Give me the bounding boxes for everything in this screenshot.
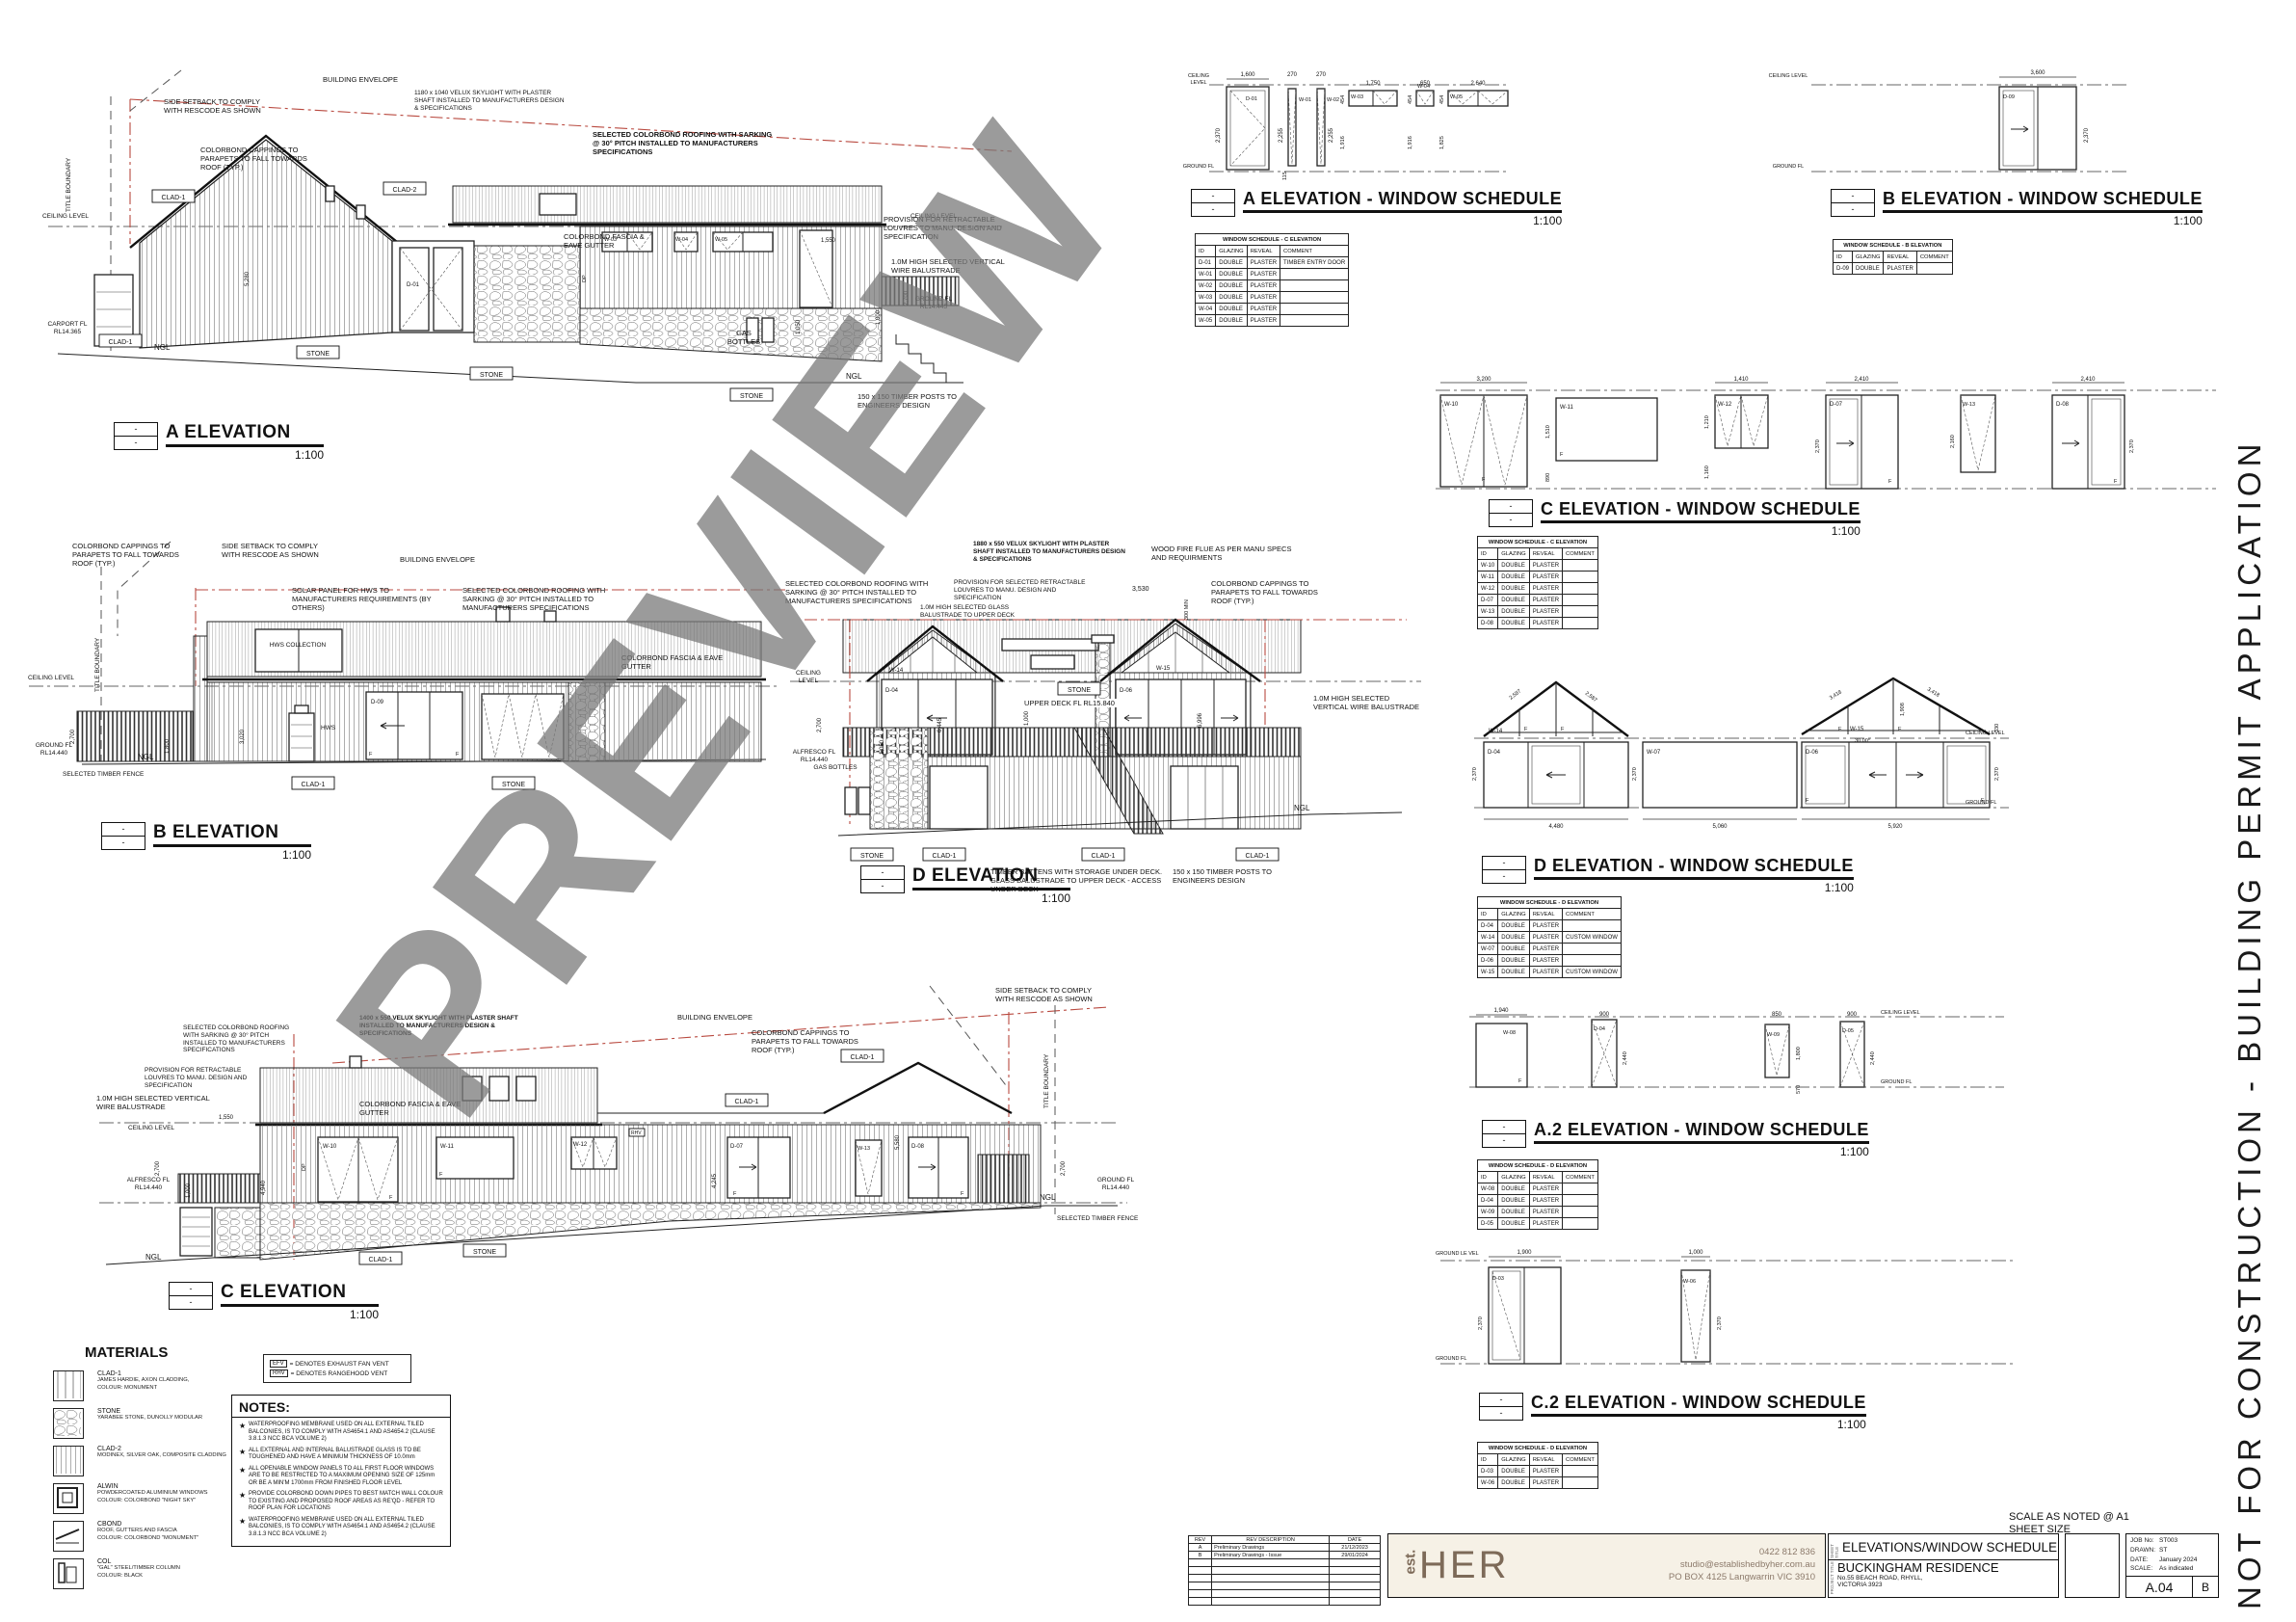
annotation: UPPER DECK FL RL15.840 [1021,699,1118,707]
vent-legend: EFV= DENOTES EXHAUST FAN VENT RHV= DENOT… [263,1354,411,1383]
dim: 2,370 [1815,439,1821,453]
table-row: D-01DOUBLEPLASTERTIMBER ENTRY DOOR [1196,257,1349,269]
dim: 3,200 [1476,377,1491,383]
annotation: COLORBOND CAPPINGS TO PARAPETS TO FALL T… [1211,579,1334,605]
d-elevation-title: -- D ELEVATION1:100 [860,865,1070,905]
tag-clad1: CLAD-1 [1236,848,1279,861]
dim: 1,600 [1240,72,1255,78]
window-id: D-06 [1806,750,1819,756]
svg-text:CLAD-1: CLAD-1 [1246,853,1270,860]
revision-table: REVREV DESCRIPTIONDATE APreliminary Draw… [1188,1535,1381,1606]
window-id: W-06 [1683,1279,1696,1285]
level-label: CEILING LEVEL [1966,731,2019,737]
boundary-label: TITLE BOUNDARY [1043,1054,1051,1108]
annotation: PROVISION FOR RETRACTABLE LOUVRES TO MAN… [145,1067,255,1089]
drawn-by: ST [2159,1547,2167,1554]
dim: 2,640 [1470,81,1486,87]
dim: 1,940 [1493,1008,1509,1014]
project-address: VICTORIA 3923 [1837,1582,1999,1588]
clad2-swatch [53,1446,84,1476]
note: ★PROVIDE COLORBOND DOWN PIPES TO BEST MA… [239,1491,443,1513]
window-id: W-05 [1450,94,1463,100]
tag-stone: STONE [297,346,339,359]
boundary-label: TITLE BOUNDARY [94,638,102,692]
dim: 300 MIN [1184,599,1190,620]
table-row: W-03DOUBLEPLASTER [1196,292,1349,304]
cbond-swatch [53,1521,84,1552]
notes-title: NOTES: [232,1399,450,1418]
table-row: W-07DOUBLEPLASTER [1478,944,1622,955]
annotation: HWS COLLECTION [263,642,332,650]
dim: 1,550 [219,1115,234,1121]
ngl-label: NGL [1294,804,1310,812]
table-row: W-13DOUBLEPLASTER [1478,606,1598,618]
logo-block: est. HER 0422 812 836 studio@established… [1387,1533,1826,1598]
c2-window-schedule-table: WINDOW SCHEDULE - D ELEVATION IDGLAZINGR… [1477,1442,1598,1489]
table-row: D-05DOUBLEPLASTER [1478,1218,1598,1230]
dim: 1,210 [1704,415,1710,429]
project-title: BUCKINGHAM RESIDENCE [1837,1560,1999,1575]
level-label: CEILING LEVEL [40,213,91,221]
svg-text:CLAD-1: CLAD-1 [162,195,186,201]
tag-stone: STONE [470,367,513,380]
dim: 1,410 [1733,377,1749,383]
tag-clad1: CLAD-1 [726,1094,768,1106]
door-d01 [400,248,429,331]
drawing-sheet: CLAD-1 CLAD-1 CLAD-2 STONE STONE STONE N… [0,0,2296,1622]
note: ★WATERPROOFING MEMBRANE USED ON ALL EXTE… [239,1422,443,1444]
annotation: COLORBOND FASCIA & EAVE GUTTER [564,232,665,250]
dim: 5,580 [895,1134,901,1150]
tag-stone: STONE [463,1244,506,1257]
tag-clad1: CLAD-1 [1082,848,1124,861]
dim: 2,700 [1061,1160,1067,1176]
window-w02 [1317,89,1325,166]
window-id: D-06 [1120,688,1133,694]
dim: 2,370 [1632,767,1638,781]
dim: 6,445 [937,717,943,732]
b-window-schedule-table: WINDOW SCHEDULE - B ELEVATION IDGLAZINGR… [1833,239,1953,275]
notes-section: NOTES: ★WATERPROOFING MEMBRANE USED ON A… [231,1395,451,1547]
project-title-label: PROJECT TITLE [1829,1560,1835,1595]
svg-text:STONE: STONE [306,351,330,358]
dim: 2,255 [1279,127,1284,143]
revision-row: APreliminary Drawings21/12/2023 [1189,1544,1381,1552]
window-id: D-04 [1594,1026,1605,1032]
ngl-label: NGL [154,343,171,352]
dim: 115 [1282,172,1288,180]
ngl-label: NGL [138,753,154,761]
annotation: COLORBOND CAPPINGS TO PARAPETS TO FALL T… [72,542,186,568]
annotation: 1.0M HIGH SELECTED GLASS BALUSTRADE TO U… [920,604,1028,620]
level-label: ALFRESCO FL RL14.440 [119,1177,178,1192]
tag-stone: STONE [851,848,893,861]
level-label: CARPORT FL RL14.365 [39,321,96,336]
logo-est: est. [1403,1557,1419,1575]
window-id: W-13 [858,1146,870,1152]
dim: 2,370 [1216,127,1222,143]
window-id: D-01 [1246,96,1257,102]
a-schedule-title: -- A ELEVATION - WINDOW SCHEDULE1:100 [1191,189,1509,227]
hws-unit [289,713,314,761]
b-schedule-title: -- B ELEVATION - WINDOW SCHEDULE1:100 [1831,189,2149,227]
dim: 5,920 [1887,824,1903,830]
gable-roof-edge [824,1063,1012,1113]
skylight [540,194,576,215]
roof-band [453,186,882,223]
dim: 3,600 [2030,70,2045,76]
table-row: W-10DOUBLEPLASTER [1478,560,1598,572]
dim: 2,700 [155,1160,161,1176]
svg-text:STONE: STONE [860,853,884,860]
fixed-mark: F [1524,727,1528,732]
gas-bottle [845,787,857,814]
col-swatch [53,1558,84,1589]
svg-text:CLAD-1: CLAD-1 [735,1099,759,1105]
level-label: GROUND FL [1180,164,1217,171]
window-id: D-08 [911,1144,925,1150]
dim: 1,000 [1024,710,1030,726]
downpipe-label: DP [582,275,588,282]
garage-door [180,1208,212,1256]
boundary-label: TITLE BOUNDARY [66,158,73,212]
table-row: D-03DOUBLEPLASTER [1478,1466,1598,1477]
dim: 2,370 [1472,767,1478,781]
dim: 3,020 [240,729,246,744]
revision-row: BPreliminary Drawings - Issue29/01/2024 [1189,1552,1381,1559]
alwin-swatch [53,1483,84,1514]
table-row: W-08DOUBLEPLASTER [1478,1183,1598,1195]
dim: 5,280 [245,271,251,286]
dim: 3,418 [1926,687,1940,699]
dim: 4,940 [261,1180,267,1195]
stone-wall [474,246,580,342]
date-value: January 2024 [2159,1556,2197,1563]
dim: 2,370 [1994,767,2000,781]
note: ★WATERPROOFING MEMBRANE USED ON ALL EXTE… [239,1517,443,1539]
dim: 6,996 [1198,712,1203,728]
window-id: W-11 [440,1144,454,1150]
dim: 270 [1316,72,1327,78]
ngl-label: NGL [145,1253,162,1262]
phone: 0422 812 836 [1669,1547,1815,1559]
dim: 2,160 [1950,435,1956,448]
annotation: SIDE SETBACK TO COMPLY WITH RESCODE AS S… [222,542,326,559]
svg-text:CLAD-1: CLAD-1 [933,853,957,860]
d-window-schedule-drawing: W-14 FF 2,587 2,587 D-04 4,480 2,370 W-0… [1465,673,2023,832]
dim: 1,160 [1704,465,1710,479]
c-elevation-title: -- C ELEVATION1:100 [169,1282,379,1321]
window-w01 [1288,89,1296,166]
table-row: D-09DOUBLEPLASTER [1834,263,1953,275]
level-label: GROUND FL [1966,800,2019,807]
window-id: D-07 [1830,402,1843,408]
dim: 454 [1340,95,1346,104]
dim: 2,440 [1623,1051,1628,1065]
table-row: D-04DOUBLEPLASTER [1478,1195,1598,1207]
not-for-construction-text: NOT FOR CONSTRUCTION - BUILDING PERMIT A… [2231,145,2282,1609]
dim: 270 [1287,72,1298,78]
level-label: GROUND FL RL14.440 [24,742,84,758]
svg-text:STONE: STONE [480,372,503,379]
dim: 4,480 [1548,824,1564,830]
fixed-mark: F [1898,727,1902,732]
contact-info: 0422 812 836 studio@establishedbyher.com… [1669,1547,1825,1583]
tag-clad1: CLAD-1 [99,334,142,347]
annotation: BUILDING ENVELOPE [677,1013,822,1022]
window-id: W-07 [1647,750,1661,756]
table-row: D-07DOUBLEPLASTER [1478,595,1598,606]
window-id: W-09 [1767,1032,1780,1038]
sheet-revision: B [2193,1577,2218,1598]
window-id: W-03 [1351,94,1363,100]
dim: 1,000 [1688,1250,1703,1256]
window-id: W-11 [1560,405,1573,411]
window-id: W-01 [1299,97,1311,103]
window-id: W-12 [573,1142,588,1148]
dim: 2,255 [1329,127,1334,143]
window-id: D-01 [407,282,420,288]
dim: 900 [1847,1012,1858,1018]
svg-text:STONE: STONE [1068,687,1091,694]
svg-text:STONE: STONE [473,1249,496,1256]
clad1-swatch [53,1370,84,1401]
table-row: W-12DOUBLEPLASTER [1478,583,1598,595]
annotation: SOLAR PANEL FOR HWS TO MANUFACTURERS REQ… [292,586,451,612]
dim: 1,825 [1439,136,1445,149]
window-id: W-13 [1963,402,1975,408]
level-label: CEILING LEVEL [26,675,76,682]
c-window-schedule-drawing: 3,200 W-10 F W-11 F 1,510 890 1,410 W-12… [1426,371,2226,498]
window-id: D-05 [1842,1028,1854,1034]
dim: 1,900 [1517,1250,1532,1256]
dim: 1,916 [1408,136,1413,149]
dim: 1,916 [1340,136,1346,149]
window-id: W-12 [1718,402,1732,408]
svg-text:CLAD-1: CLAD-1 [851,1054,875,1061]
a2-window-schedule-table: WINDOW SCHEDULE - D ELEVATION IDGLAZINGR… [1477,1159,1598,1230]
sheet-number: A.04 [2126,1577,2193,1598]
timber-fence [77,711,193,761]
level-label: CEILING LEVEL [126,1125,176,1132]
note: ★ALL OPENABLE WINDOW PANELS TO ALL FIRST… [239,1466,443,1488]
window-id: W-04 [1417,84,1430,90]
window-id: W-14 [1489,729,1503,734]
table-row: W-06DOUBLEPLASTER [1478,1477,1598,1489]
dim: 570 [1796,1085,1802,1094]
table-row: W-04DOUBLEPLASTER [1196,304,1349,315]
level-label: GROUND FL [1768,164,1808,171]
c-elevation-drawing: RHV CLAD-1 CLAD-1 CLAD-1 STONE NGL NGL W… [92,978,1228,1279]
window-id: D-03 [1492,1276,1504,1282]
window-id: W-14 [889,668,904,674]
window-id: W-15 [1850,727,1864,732]
dim: 2,370 [1478,1316,1484,1330]
annotation: GAS BOTTLES [812,764,858,772]
d-window-schedule-table: WINDOW SCHEDULE - D ELEVATION IDGLAZINGR… [1477,896,1622,978]
efv-legend: EFV= DENOTES EXHAUST FAN VENT [270,1360,405,1368]
dim: 890 [1545,473,1551,482]
annotation: SELECTED TIMBER FENCE [1057,1215,1148,1223]
c2-schedule-title: -- C.2 ELEVATION - WINDOW SCHEDULE1:100 [1479,1393,1811,1431]
annotation: SELECTED COLORBOND ROOFING WITH SARKING … [183,1024,291,1054]
annotation: SELECTED COLORBOND ROOFING WITH SARKING … [593,130,780,156]
annotation: 1880 x 550 VELUX SKYLIGHT WITH PLASTER S… [973,541,1127,563]
materials-title: MATERIALS [85,1344,279,1361]
table-row: D-06DOUBLEPLASTER [1478,955,1622,967]
svg-text:CLAD-1: CLAD-1 [369,1257,393,1263]
window-id: W-10 [1444,402,1459,408]
dim: 3,530 [1132,586,1149,593]
a-window-schedule-drawing: 1,600 2,370 D-01 270 2,255 W-01 270 2,25… [1180,48,1513,193]
stone-wall [870,728,928,829]
dim: 2,440 [1870,1051,1876,1065]
a-window-schedule-table: WINDOW SCHEDULE - C ELEVATION IDGLAZINGR… [1195,233,1349,327]
level-label: CEILING LEVEL [1180,73,1217,86]
address: PO BOX 4125 Langwarrin VIC 3910 [1669,1572,1815,1584]
level-label: GROUND LE VEL [1436,1251,1486,1258]
stone-base [260,1203,1041,1260]
sheet-title-label: SHEET TITLE [1829,1534,1840,1559]
dim: 2,410 [1854,377,1869,383]
window-id: W-15 [1156,666,1171,672]
annotation: BUILDING ENVELOPE [323,75,477,84]
d-schedule-title: -- D ELEVATION - WINDOW SCHEDULE1:100 [1482,856,1800,894]
dim: 4,245 [712,1173,718,1188]
window-id: W-04 [675,237,688,243]
dim: 454 [1439,95,1445,104]
a2-window-schedule-drawing: 1,940 W-08 F 900 2,440 D-04 850 1,800 57… [1465,969,2023,1099]
dim: 454 [1408,95,1413,104]
timber-fence [978,1155,1029,1203]
annotation: SIDE SETBACK TO COMPLY WITH RESCODE AS S… [164,97,265,115]
a-elevation-title: -- A ELEVATION1:100 [114,422,324,462]
level-label: GROUND FL [1881,1079,1939,1086]
dim: 2,370 [1717,1316,1723,1330]
tag-clad2: CLAD-2 [383,182,426,195]
annotation: COLORBOND CAPPINGS TO PARAPETS TO FALL T… [200,146,326,172]
annotation: WOOD FIRE FLUE AS PER MANU SPECS AND REQ… [1151,545,1296,562]
table-row: W-02DOUBLEPLASTER [1196,280,1349,292]
job-info-block: JOB No:ST003 DRAWN:ST DATE:January 2024 … [2125,1533,2219,1598]
table-row: W-01DOUBLEPLASTER [1196,269,1349,280]
annotation: 1.0M HIGH SELECTED VERTICAL WIRE BALUSTR… [96,1094,220,1111]
note: ★ALL EXTERNAL AND INTERNAL BALUSTRADE GL… [239,1448,443,1462]
c-window-schedule-table: WINDOW SCHEDULE - C ELEVATION IDGLAZINGR… [1477,536,1598,629]
dim: 2,587 [1509,689,1523,702]
window-id: D-07 [730,1144,744,1150]
window-id: W-02 [1327,97,1339,103]
tag-clad1: CLAD-1 [923,848,965,861]
table-row: D-04DOUBLEPLASTER [1478,920,1622,932]
scale-value: As indicated [2159,1565,2193,1572]
dim: 1,800 [1796,1047,1802,1060]
stone-swatch [53,1408,84,1439]
svg-text:CLAD-1: CLAD-1 [109,339,133,346]
level-label: CEILING LEVEL [1881,1010,1939,1017]
dim: 5,060 [1712,824,1728,830]
window-id: D-09 [2003,94,2015,100]
b-window-schedule-drawing: 3,600 2,370 D-09 CEILING LEVEL GROUND FL [1768,48,2134,193]
job-number: ST003 [2159,1537,2177,1544]
logo-her: HER [1419,1544,1509,1587]
a2-schedule-title: -- A.2 ELEVATION - WINDOW SCHEDULE1:100 [1482,1120,1809,1158]
downpipe-label: DP [302,1163,307,1171]
dim: 1,510 [1545,425,1551,439]
annotation: 1180 x 1040 VELUX SKYLIGHT WITH PLASTER … [414,90,568,112]
sheet-project-title-block: SHEET TITLE ELEVATIONS/WINDOW SCHEDULE P… [1828,1533,2059,1598]
svg-text:CLAD-2: CLAD-2 [393,187,417,194]
dim: 900 [1599,1012,1610,1018]
dim: 1,000 [186,1183,192,1198]
tag-clad1: CLAD-1 [359,1252,402,1264]
annotation: PROVISION FOR SELECTED RETRACTABLE LOUVR… [954,579,1089,601]
annotation: 1.0M HIGH SELECTED VERTICAL WIRE BALUSTR… [1313,694,1421,711]
annotation: BUILDING ENVELOPE [400,555,554,564]
dim: 1,750 [1365,81,1381,87]
dim: 3,418 [1829,689,1843,701]
fixed-mark: F [1838,727,1842,732]
svg-text:CLAD-1: CLAD-1 [302,782,326,788]
window-id: D-09 [371,700,384,705]
rhv-label: RHV [631,1130,642,1136]
table-row: W-11DOUBLEPLASTER [1478,572,1598,583]
table-row: D-08DOUBLEPLASTER [1478,618,1598,629]
dim: 850 [1772,1012,1782,1018]
ngl-label: NGL [1040,1193,1056,1202]
dim: 2,370 [2084,127,2090,143]
tag-stone: STONE [1058,682,1100,695]
window-id: W-10 [323,1144,337,1150]
annotation: SIDE SETBACK TO COMPLY WITH RESCODE AS S… [995,986,1099,1003]
dim: 2,410 [2080,377,2096,383]
dim: 2,587 [1584,691,1598,704]
window-id: W-08 [1503,1030,1516,1036]
dim: 1,800 [165,738,171,754]
svg-text:CLAD-1: CLAD-1 [1092,853,1116,860]
c-schedule-title: -- C ELEVATION - WINDOW SCHEDULE1:100 [1489,499,1807,538]
parapet [194,636,207,761]
stamp-box [2065,1533,2120,1598]
material-col: COL"GAL" STEEL/TIMBER COLUMN COLOUR: BLA… [53,1558,279,1589]
window-id: W-05 [715,237,727,243]
annotation: HWS [321,725,359,732]
level-label: GROUND FL [1436,1356,1486,1363]
level-label: CEILING LEVEL [1768,73,1808,80]
window-w07 [1643,742,1797,808]
table-row: W-14DOUBLEPLASTERCUSTOM WINDOW [1478,932,1622,944]
fixed-mark: F [1561,727,1565,732]
window-id: D-08 [2056,402,2070,408]
tag-clad1: CLAD-1 [292,777,334,789]
project-address: No.55 BEACH ROAD, RHYLL, [1837,1575,1999,1582]
level-label: GROUND FL RL14.440 [1084,1177,1148,1192]
dim: 2,370 [2129,439,2135,453]
skylight [1002,639,1098,651]
table-row: W-09DOUBLEPLASTER [1478,1207,1598,1218]
c2-window-schedule-drawing: 1,900 2,370 D-03 1,000 2,370 W-06 GROUND… [1436,1243,2023,1373]
annotation: SELECTED TIMBER FENCE [63,771,145,779]
rhv-legend: RHV= DENOTES RANGEHOOD VENT [270,1369,405,1377]
annotation: COLORBOND CAPPINGS TO PARAPETS TO FALL T… [752,1028,875,1054]
email: studio@establishedbyher.com.au [1669,1559,1815,1572]
sheet-title: ELEVATIONS/WINDOW SCHEDULE [1840,1540,2057,1555]
dim: 1,050 [880,739,885,755]
table-row: W-05DOUBLEPLASTER [1196,315,1349,327]
b-elevation-title: -- B ELEVATION1:100 [101,822,311,862]
window-id: D-04 [885,688,899,694]
window-id: D-04 [1488,750,1501,756]
